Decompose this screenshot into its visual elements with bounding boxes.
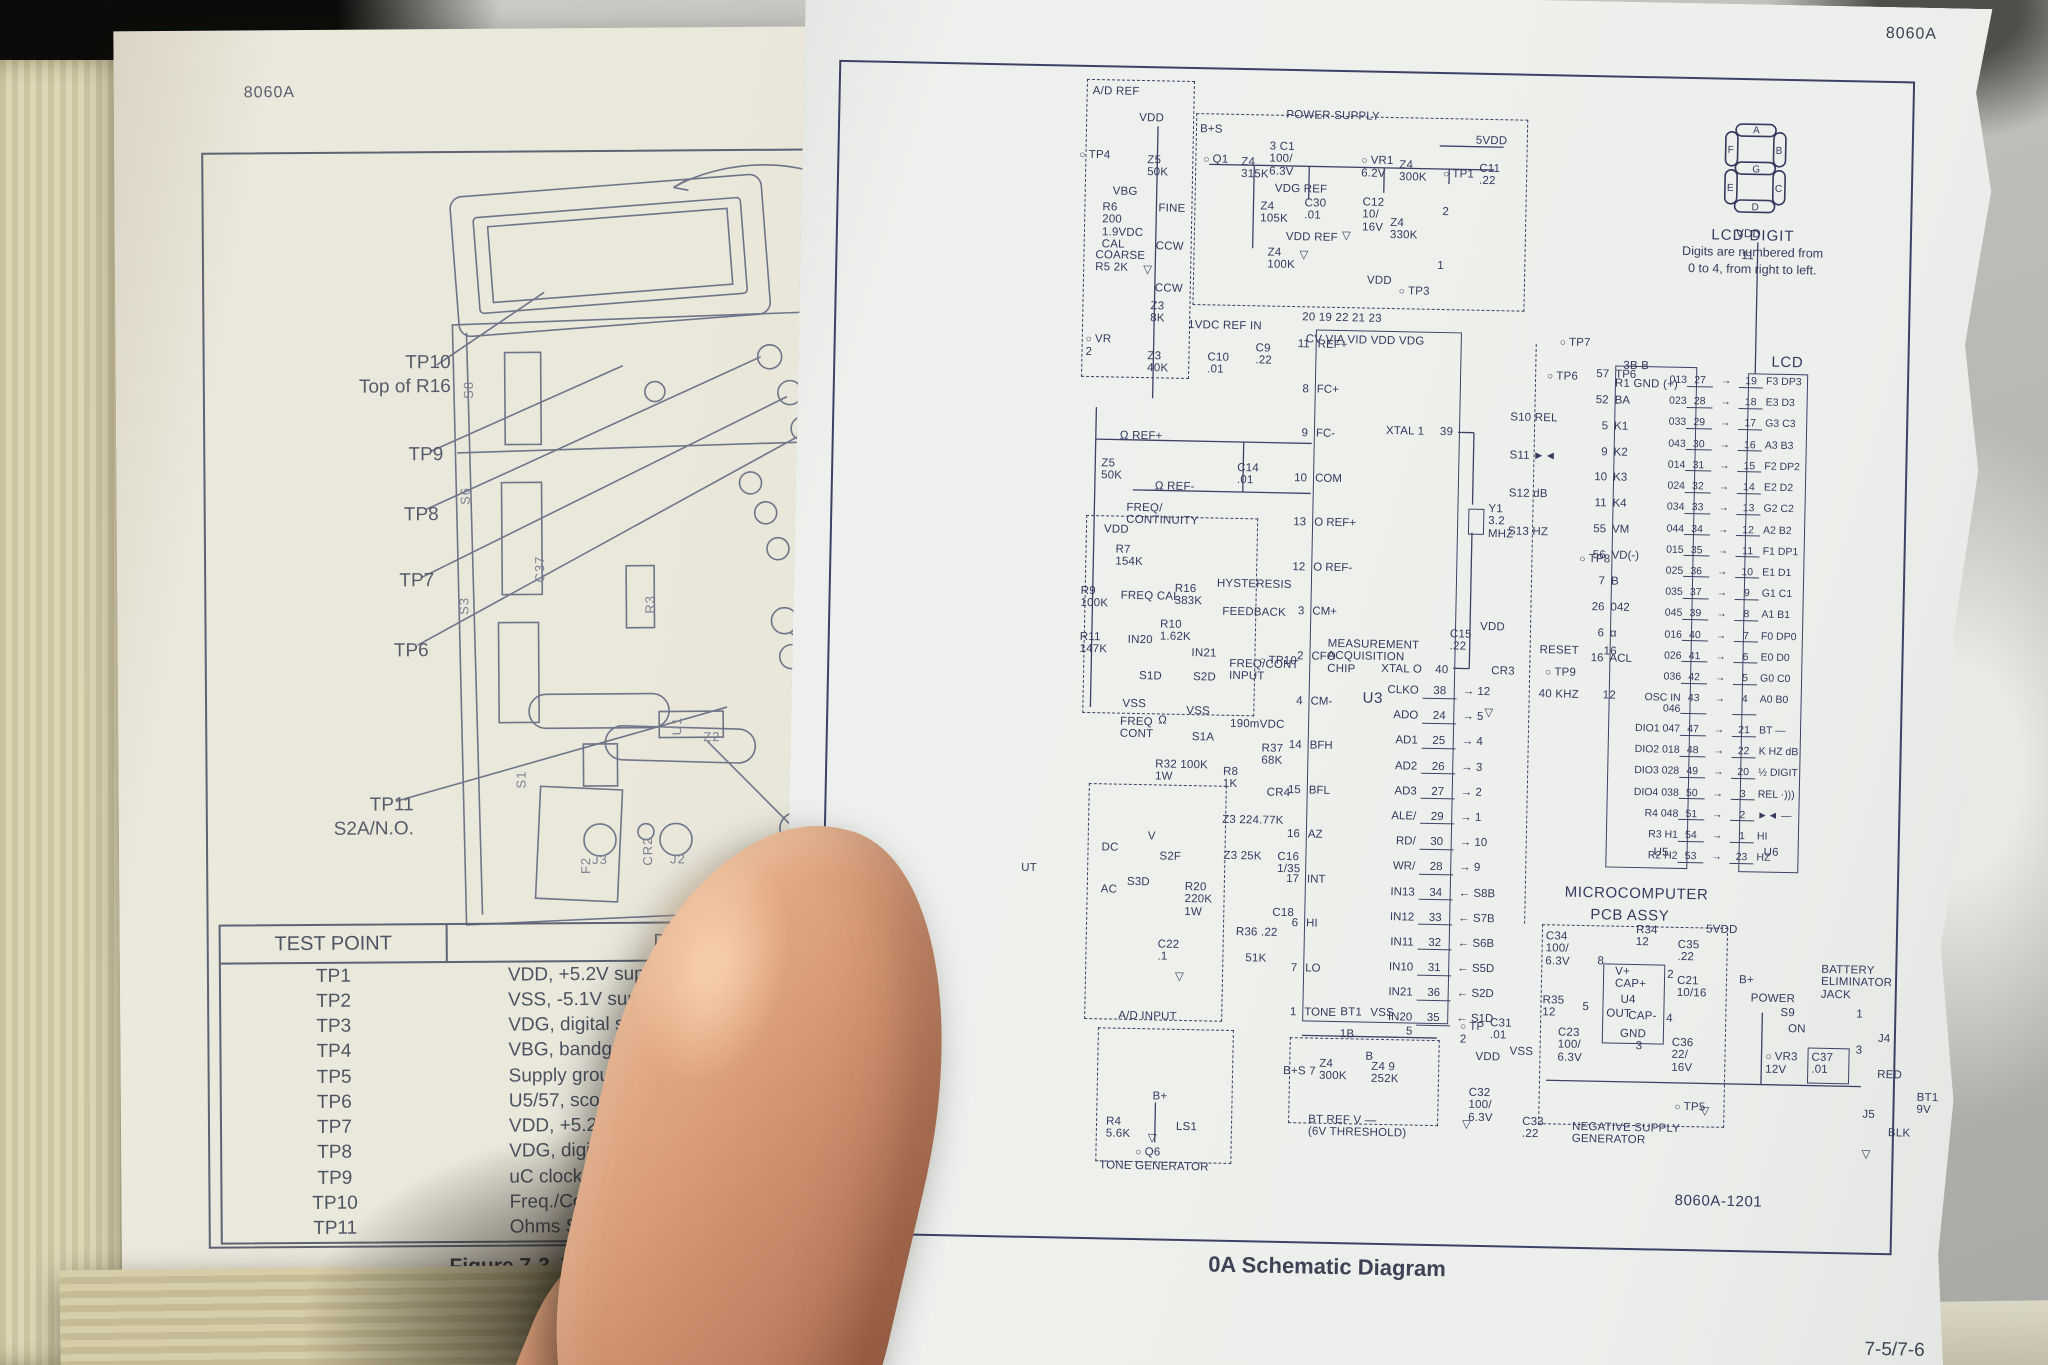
schematic-label: MICROCOMPUTER xyxy=(1565,885,1709,904)
seven-segment-digit-icon: A F B G E C D xyxy=(1722,120,1788,217)
schematic-label: R37 68K xyxy=(1261,743,1283,768)
schematic-label: C36 22/ 16V xyxy=(1671,1037,1693,1075)
schematic-label: R8 1K xyxy=(1223,766,1239,791)
svg-text:E: E xyxy=(1727,183,1734,194)
schematic-label: GND xyxy=(1620,1028,1646,1041)
schematic-label: ▽ xyxy=(1861,1149,1870,1162)
schematic-label: 3 xyxy=(1856,1044,1863,1057)
schematic-label: FREQ/CONT INPUT xyxy=(1229,658,1299,684)
svg-text:C: C xyxy=(1775,184,1782,195)
schematic-label: A/D REF xyxy=(1093,85,1140,98)
u3-pin-row: 10COM xyxy=(1267,472,1417,487)
schematic-label: TP8 xyxy=(1579,553,1610,566)
schematic-label: ON xyxy=(1788,1023,1806,1036)
u3-pin-row: ADO24→ 5 xyxy=(1348,709,1558,726)
pcb-component-label: CR2 xyxy=(640,837,655,866)
schematic-label: R4 5.6K xyxy=(1106,1115,1131,1140)
schematic-label: Q6 xyxy=(1135,1146,1160,1159)
test-point-callout: TP7 xyxy=(399,569,434,593)
schematic-label: C18 xyxy=(1272,907,1294,920)
u3-pin-row: IN1334← S8B xyxy=(1345,886,1555,903)
crystal-y1-box xyxy=(1468,509,1485,535)
schematic-label: VSS xyxy=(1186,705,1210,718)
schematic-label: 190mVDC xyxy=(1230,718,1285,731)
schematic-label: ▽ xyxy=(1148,1132,1157,1145)
schematic-label: R11 147K xyxy=(1079,631,1107,656)
schematic-label: S10 REL xyxy=(1510,411,1558,424)
schematic-label: U3 xyxy=(1362,691,1383,708)
schematic-label: R32 100K 1W xyxy=(1155,758,1208,784)
right-page-header: 8060A xyxy=(1886,25,1938,44)
schematic-label: S2D xyxy=(1193,671,1216,684)
schematic-label: FEEDBACK xyxy=(1222,606,1286,620)
schematic-label: BATTERY ELIMINATOR JACK xyxy=(1821,964,1893,1003)
schematic-label: XTAL 1 xyxy=(1386,425,1425,438)
u3-pin-row: 13O REF+ xyxy=(1266,517,1416,532)
schematic-label: VSS xyxy=(1122,698,1146,711)
schematic-label: POWER SUPPLY xyxy=(1286,109,1380,123)
schematic-label: ▽ xyxy=(1700,1105,1709,1118)
schematic-label: Z4 315K xyxy=(1241,156,1269,181)
schematic-label: TP3 xyxy=(1399,285,1430,298)
schematic-label: Z4 100K xyxy=(1267,247,1295,272)
schematic-label: U6 xyxy=(1763,847,1778,860)
schematic-label: TP9 xyxy=(1545,666,1576,679)
pcb-component-label: S1 xyxy=(514,771,529,789)
schematic-label: J4 xyxy=(1878,1033,1891,1046)
schematic-label: C37 .01 xyxy=(1811,1052,1833,1077)
schematic-label: C32 100/ 6.3V xyxy=(1468,1087,1493,1125)
schematic-label: VSS xyxy=(1509,1046,1533,1059)
schematic-label: ▽ xyxy=(1143,264,1152,277)
schematic-label: R20 220K 1W xyxy=(1184,881,1212,919)
schematic-label: Z4 9 252K xyxy=(1371,1061,1399,1086)
schematic-label: FREQ/ CONTINUITY xyxy=(1126,502,1199,528)
schematic-label: BT1 9V xyxy=(1916,1092,1938,1117)
schematic-label: S11 ►◄ xyxy=(1509,449,1556,462)
schematic-label: 16 xyxy=(1603,645,1616,658)
lcd-digit-note-1: Digits are numbered from xyxy=(1682,244,1823,261)
schematic-label: S12 dB xyxy=(1509,487,1548,500)
schematic-label: R1 GND (+) xyxy=(1615,378,1678,392)
pcb-component-label: S3 xyxy=(456,597,471,615)
schematic-label: VBG xyxy=(1113,185,1138,198)
col-test-point: TEST POINT xyxy=(221,925,448,963)
schematic-label: C21 10/16 xyxy=(1677,975,1707,1000)
svg-text:D: D xyxy=(1751,202,1758,213)
page-number-right: 7-5/7-6 xyxy=(1864,1339,1925,1362)
schematic-label: Z5 50K xyxy=(1101,457,1123,482)
lcd-connection-row: 03642→5G0 C0 xyxy=(1629,671,1829,687)
lcd-connection-row: R4 04851→2►◄ — xyxy=(1626,808,1826,824)
schematic-label: VDG REF xyxy=(1275,183,1328,196)
schematic-label: S13 HZ xyxy=(1508,525,1548,538)
schematic-label: Z4 330K xyxy=(1390,217,1418,242)
schematic-label: Q1 xyxy=(1203,153,1228,166)
schematic-label: C23 100/ 6.3V xyxy=(1557,1027,1582,1065)
pcb-component-label: Z2 xyxy=(703,729,720,744)
schematic-label: COARSE R5 2K xyxy=(1095,249,1145,275)
schematic-label: 5VDD xyxy=(1706,923,1738,936)
test-point-callout: TP8 xyxy=(404,503,439,527)
schematic-label: R7 154K xyxy=(1115,544,1143,569)
schematic-foldout-page: 8060A xyxy=(778,0,2022,1365)
test-point-callout: TP6 xyxy=(394,639,429,663)
lcd-digit-note-2: 0 to 4, from right to left. xyxy=(1688,261,1817,278)
schematic-label: 1B xyxy=(1340,1028,1355,1041)
schematic-label: NEGATIVE SUPPLY GENERATOR xyxy=(1572,1121,1681,1148)
schematic-label: 3 C1 100/ 6.3V xyxy=(1269,141,1295,179)
schematic-label: ▽ xyxy=(1462,1119,1471,1132)
svg-text:A: A xyxy=(1753,125,1760,136)
u3-pin-row: IN1233← S7B xyxy=(1344,911,1554,928)
lcd-connection-row: 02641→6E0 D0 xyxy=(1629,650,1829,666)
schematic-label: 5 xyxy=(1406,1025,1413,1038)
schematic-label: 3B B xyxy=(1623,360,1649,373)
schematic-label: Ω REF+ xyxy=(1120,430,1163,443)
lcd-connection-row: 04330→16A3 B3 xyxy=(1634,438,1834,454)
schematic-label: C30 .01 xyxy=(1304,197,1326,222)
schematic-label: R34 12 xyxy=(1636,924,1658,949)
schematic-label: 2 xyxy=(1442,206,1449,219)
pcb-component-label: S6 xyxy=(458,487,473,505)
lcd-connection-row: DIO2 01848→22K HZ dB xyxy=(1628,744,1828,760)
schematic-label: 4 xyxy=(1666,1013,1673,1026)
schematic-label: 40 KHZ xyxy=(1539,688,1579,701)
schematic-label: R36 .22 xyxy=(1236,926,1278,939)
lcd-connection-row: 04539→8A1 B1 xyxy=(1630,607,1830,623)
schematic-label: TP6 xyxy=(1547,370,1578,383)
pcb-component-label: J3 xyxy=(592,852,608,867)
schematic-label: CAP- xyxy=(1628,1010,1657,1023)
schematic-label: S9 xyxy=(1780,1007,1795,1020)
schematic-label: 5 xyxy=(1582,1001,1589,1014)
schematic-label: VDD REF xyxy=(1286,231,1338,244)
schematic-label: J5 xyxy=(1862,1109,1875,1122)
schematic-label: TP7 xyxy=(1560,336,1591,349)
schematic-label: TP 2 xyxy=(1460,1021,1485,1047)
schematic-label: VDD xyxy=(1480,621,1505,634)
u3-pin-row: AD226→ 3 xyxy=(1347,760,1557,777)
u5-lcd-ladder: 01327→19F3 DP302328→18E3 D303329→17G3 C3… xyxy=(1625,374,1835,866)
schematic-label: C16 1/35 xyxy=(1277,851,1301,876)
svg-text:G: G xyxy=(1752,164,1760,175)
schematic-label: CCW xyxy=(1156,240,1184,253)
schematic-label: C15 .22 xyxy=(1450,628,1472,653)
schematic-label: VDD xyxy=(1139,112,1164,125)
schematic-label: 1 xyxy=(1856,1008,1863,1021)
schematic-label: 8 xyxy=(1597,955,1604,968)
schematic-label: S1D xyxy=(1139,670,1162,683)
schematic-label: R35 12 xyxy=(1542,994,1564,1019)
lcd-connection-row: 01431→15F2 DP2 xyxy=(1633,459,1833,475)
lcd-connection-row: 01640→7F0 DP0 xyxy=(1630,629,1830,645)
schematic-label: B+ xyxy=(1152,1090,1167,1103)
u3-pin-row: RD/30→ 10 xyxy=(1346,835,1556,852)
schematic-label: CR3 xyxy=(1491,665,1515,678)
schematic-label: C12 10/ 16V xyxy=(1362,196,1384,234)
schematic-label: Z4 300K xyxy=(1399,159,1427,184)
schematic-label: S1A xyxy=(1192,731,1215,744)
schematic-label: IN21 xyxy=(1191,647,1216,660)
lcd-connection-row: OSC IN 04643→4A0 B0 xyxy=(1628,692,1828,717)
lcd-connection-row: 03329→17G3 C3 xyxy=(1634,416,1834,432)
schematic-label: A/D INPUT xyxy=(1118,1010,1177,1024)
schematic-label: B+ xyxy=(1739,974,1754,987)
u3-pin-row: 3CM+ xyxy=(1264,606,1414,621)
u3-pin-row: AD327→ 2 xyxy=(1347,785,1557,802)
schematic-label: C9 .22 xyxy=(1255,342,1272,367)
schematic-label: U5 xyxy=(1653,846,1668,859)
u3-pin-row: AD125→ 4 xyxy=(1348,735,1558,752)
schematic-label: 40 xyxy=(1435,664,1448,677)
schematic-label: Ω xyxy=(1158,714,1167,727)
schematic-label: Ω REF- xyxy=(1155,480,1195,493)
schematic-label: VSS xyxy=(1370,1007,1394,1020)
schematic-label: ▽ xyxy=(1484,707,1493,720)
pcb-component-label: J2 xyxy=(670,851,686,866)
u3-pin-row: WR/28→ 9 xyxy=(1345,861,1555,878)
schematic-label: TONE GENERATOR xyxy=(1099,1159,1209,1174)
schematic-label: ▽ xyxy=(1175,971,1184,984)
schematic-label: C35 .22 xyxy=(1677,939,1699,964)
schematic-label: C11 .22 xyxy=(1479,163,1500,188)
schematic-label: Z3 25K xyxy=(1223,850,1262,863)
schematic-label: FINE xyxy=(1158,202,1185,215)
lcd-connection-row: 02432→14E2 D2 xyxy=(1633,480,1833,496)
schematic-label: RED xyxy=(1877,1069,1902,1082)
schematic-label: Z3 8K xyxy=(1150,300,1165,325)
schematic-label: C33 .22 xyxy=(1522,1116,1544,1141)
schematic-label: CV VIA VID VDD VDG xyxy=(1306,333,1425,348)
schematic-label: VR 2 xyxy=(1085,333,1111,359)
test-point-callout: TP9 xyxy=(408,443,443,467)
schematic-label: RESET xyxy=(1539,644,1579,657)
test-point-callout: TP10Top of R16 xyxy=(359,351,451,399)
schematic-label: C22 .1 xyxy=(1157,938,1179,963)
schematic-label: 12 xyxy=(1603,689,1616,702)
schematic-label: Z4 300K xyxy=(1319,1058,1347,1083)
u3-pin-row: IN2136← S2D xyxy=(1343,986,1553,1003)
schematic-label: C10 .01 xyxy=(1207,351,1229,376)
schematic-label: C31 .01 xyxy=(1490,1017,1512,1042)
schematic-label: ▽ xyxy=(1342,230,1351,243)
pcb-component-label: F2 xyxy=(578,857,593,874)
schematic-label: POWER xyxy=(1751,992,1796,1005)
schematic-label: U4 xyxy=(1620,994,1635,1007)
u3-right-pins: CLKO38→ 12ADO24→ 5AD125→ 4AD226→ 3AD327→… xyxy=(1342,684,1559,1028)
schematic-label: 1 xyxy=(1437,260,1444,273)
schematic-label: BT1 xyxy=(1340,1006,1362,1019)
u3-pin-row: IN1132← S6B xyxy=(1344,936,1554,953)
schematic-label: Z3 224.77K xyxy=(1222,814,1284,828)
schematic-label: 5VDD xyxy=(1476,135,1508,148)
pcb-component-label: R3 xyxy=(642,595,657,614)
svg-text:F: F xyxy=(1728,145,1734,156)
schematic-label: FREQ CONT xyxy=(1120,716,1154,741)
u3-pin-row: 8FC+ xyxy=(1269,383,1419,398)
schematic-label: 51K xyxy=(1245,952,1266,965)
schematic-frame: 11REF+8FC+9FC-10COM13O REF+12O REF-3CM+2… xyxy=(816,60,1915,1255)
schematic-label: CR4 xyxy=(1267,787,1291,800)
schematic-label: C34 100/ 6.3V xyxy=(1545,930,1570,968)
svg-text:B: B xyxy=(1776,146,1783,157)
schematic-label: V xyxy=(1148,830,1156,843)
lcd-connection-row: 02536→10E1 D1 xyxy=(1631,565,1831,581)
schematic-label: LS1 xyxy=(1176,1121,1197,1134)
schematic-label: Z5 50K xyxy=(1147,154,1169,179)
schematic-label: R9 100K xyxy=(1080,585,1108,610)
schematic-label: VR1 6.2V xyxy=(1361,154,1394,180)
schematic-label: IN20 xyxy=(1128,634,1153,647)
schematic-label: BT REF V — (6V THRESHOLD) xyxy=(1308,1114,1407,1141)
u3-pin-row: IN1031← S5D xyxy=(1343,961,1553,978)
schematic-label: TP1 xyxy=(1443,168,1474,181)
lcd-connection-row: 03433→13G2 C2 xyxy=(1632,501,1832,517)
schematic-label: UT xyxy=(1021,862,1037,875)
schematic-label: C14 .01 xyxy=(1237,462,1259,487)
drawing-number: 8060A-1201 xyxy=(1674,1193,1762,1211)
schematic-caption: 0A Schematic Diagram xyxy=(1208,1252,1446,1283)
lcd-digit-legend: A F B G E C D LCD DIGIT Digits are numbe… xyxy=(1721,120,1850,280)
schematic-label: BLK xyxy=(1888,1127,1911,1140)
schematic-label: R16 383K xyxy=(1174,583,1202,608)
pcb-component-label: C37 xyxy=(532,555,547,582)
u3-pin-row: ALE/29→ 1 xyxy=(1346,810,1556,827)
schematic-label: 39 xyxy=(1440,426,1453,439)
schematic-label: Z4 105K xyxy=(1260,200,1288,225)
schematic-label: DC xyxy=(1101,841,1118,854)
schematic-label: FREQ CAL xyxy=(1120,590,1179,604)
schematic-label: B+S 7 xyxy=(1283,1065,1316,1078)
test-point-callout: TP11S2A/N.O. xyxy=(333,793,414,841)
schematic-label: B+S xyxy=(1200,123,1223,136)
photo-of-manual: 8060A xyxy=(0,0,2048,1365)
schematic-label: AC xyxy=(1101,883,1118,896)
schematic-label: HYSTERESIS xyxy=(1217,578,1292,592)
schematic-label: VR3 12V xyxy=(1765,1051,1798,1077)
lcd-connection-row: 02328→18E3 D3 xyxy=(1635,395,1835,411)
lcd-connection-row: 04434→12A2 B2 xyxy=(1632,522,1832,538)
lcd-connection-row: DIO1 04747→21BT — xyxy=(1628,723,1828,739)
schematic-label: 20 19 22 21 23 xyxy=(1302,311,1382,325)
pcb-component-label: S8 xyxy=(461,381,476,399)
lcd-connection-row: DIO4 03850→3REL ·))) xyxy=(1627,787,1827,803)
lcd-connection-row: 01535→11F1 DP1 xyxy=(1632,544,1832,560)
schematic-label: V+ CAP+ xyxy=(1615,966,1647,991)
pcb-component-label: U1 xyxy=(669,717,684,736)
schematic-label: VDD xyxy=(1367,275,1392,288)
schematic-label: CCW xyxy=(1155,282,1183,295)
schematic-label: LCD xyxy=(1771,355,1803,372)
schematic-label: 2 xyxy=(1667,969,1674,982)
schematic-label: 1VDC REF IN xyxy=(1188,319,1262,333)
lcd-connection-row: R3 H154→1HI xyxy=(1626,829,1826,845)
schematic-label: PCB ASSY xyxy=(1590,907,1669,925)
schematic-label: ▽ xyxy=(1299,249,1308,262)
schematic-label: VDD xyxy=(1475,1051,1500,1064)
u3-pin-row: 12O REF- xyxy=(1265,561,1415,576)
schematic-label: TP4 xyxy=(1079,149,1110,162)
lcd-connection-row: 03537→9G1 C1 xyxy=(1631,586,1831,602)
left-page-header: 8060A xyxy=(244,84,295,102)
schematic-label: XTAL O xyxy=(1381,663,1422,676)
schematic-label: 3 xyxy=(1636,1040,1643,1053)
schematic-label: S2F xyxy=(1159,850,1181,863)
schematic-label: R6 200 1.9VDC CAL xyxy=(1102,201,1144,251)
schematic-label: Z3 40K xyxy=(1147,350,1169,375)
schematic-label: VDD xyxy=(1104,523,1129,536)
schematic-label: R10 1.62K xyxy=(1160,618,1192,643)
lcd-connection-row: DIO3 02849→20½ DIGIT xyxy=(1627,765,1827,781)
schematic-label: S3D xyxy=(1127,876,1150,889)
